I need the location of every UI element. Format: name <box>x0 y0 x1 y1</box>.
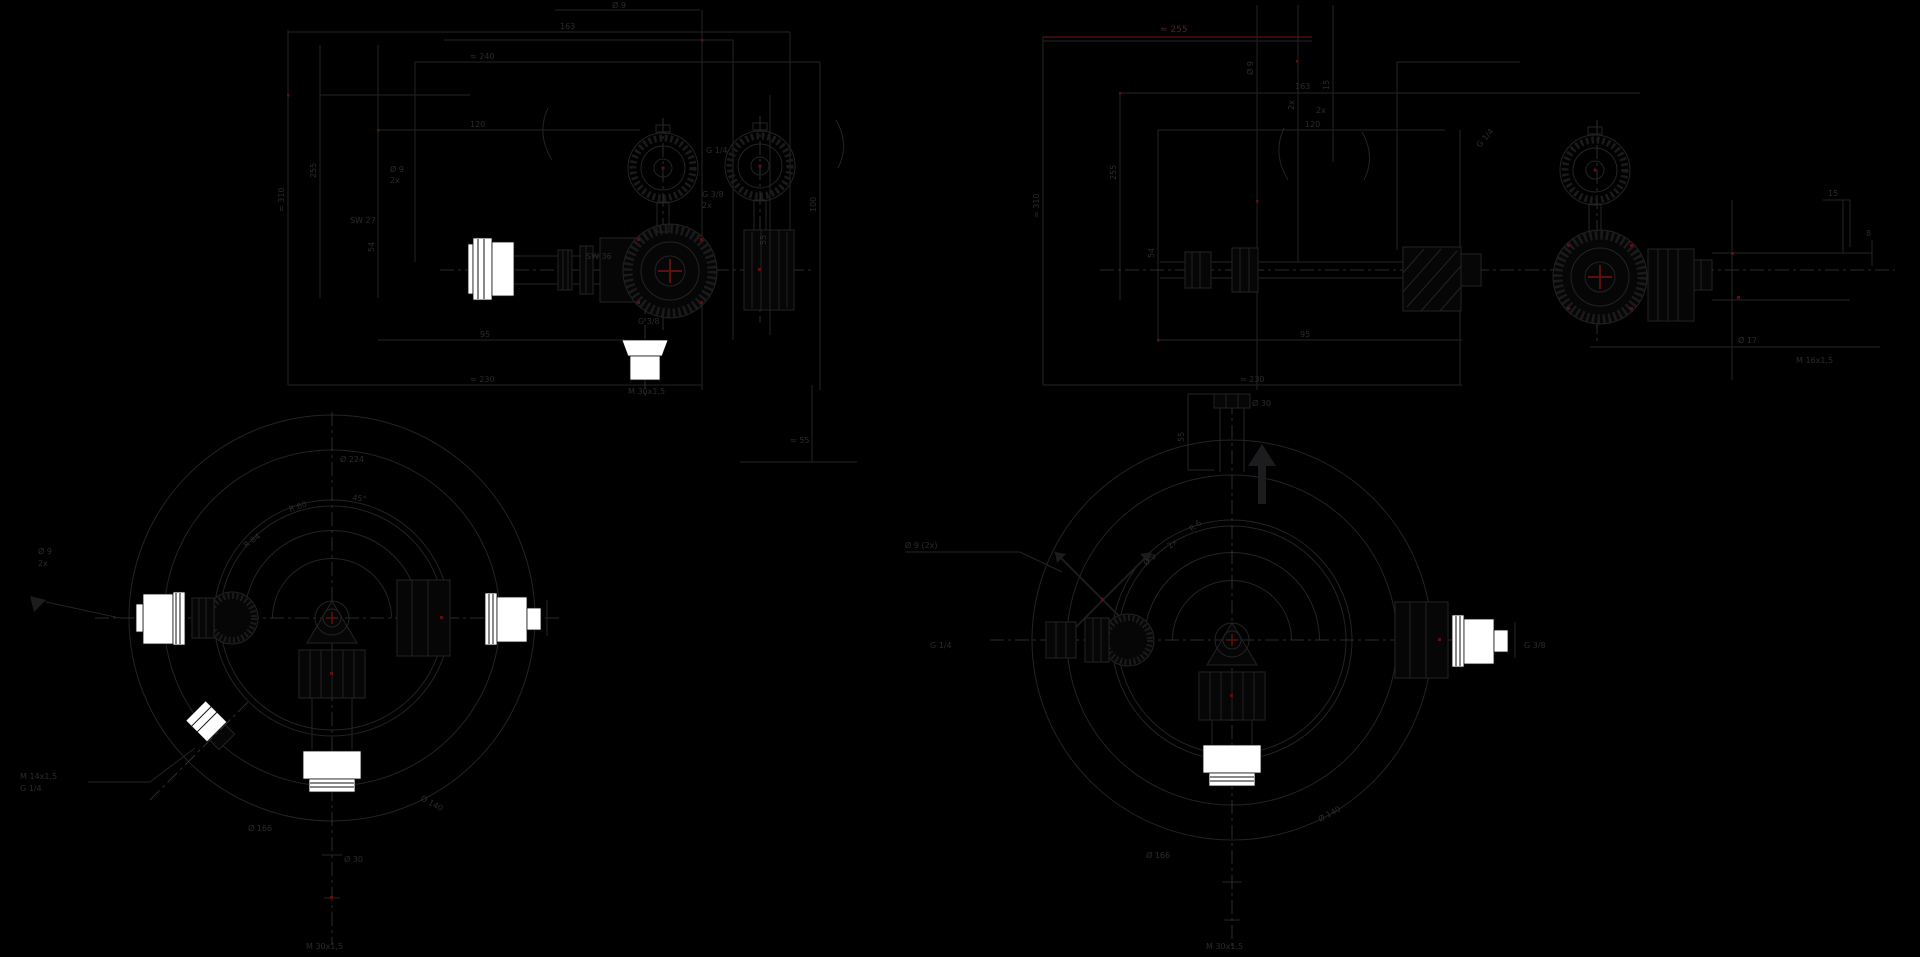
dim-label: 2x <box>1316 106 1326 115</box>
dim-label: G 1/4 <box>706 146 728 155</box>
side-handwheel <box>1553 230 1647 324</box>
dim-label-red: ≈ 255 <box>1160 25 1188 35</box>
dim-label: G 1/4 <box>20 784 42 793</box>
dim-label: ≈ 55 <box>790 436 809 445</box>
dim-label: SW 36 <box>586 252 612 261</box>
dim-label: 95 <box>1300 330 1310 339</box>
dim-label: G 3/8 <box>638 317 660 326</box>
dim-label: 163 <box>560 22 575 31</box>
dim-label: 255 <box>309 163 318 178</box>
dim-label: 2x <box>702 201 712 210</box>
dim-label: 120 <box>470 120 485 129</box>
dim-label: 120 <box>1305 120 1320 129</box>
dim-label: 8 <box>1866 229 1871 238</box>
adjusting-handwheel <box>623 224 717 318</box>
dim-label: Ø 17 <box>1738 335 1757 345</box>
hatched-body-block <box>1403 247 1461 311</box>
inlet-fitting-white <box>468 238 514 300</box>
dim-label: Ø 9 <box>38 546 52 556</box>
dim-label: M 16x1,5 <box>1796 356 1833 365</box>
dim-label: 15 <box>1828 189 1838 198</box>
dim-label: 54 <box>367 242 376 252</box>
dim-label: Ø 30 <box>1252 398 1271 408</box>
dim-label: G 1/4 <box>930 641 952 650</box>
dim-label: Ø 9 <box>612 0 626 10</box>
technical-drawing-canvas: Ø 9 163 ≈ 240 ≈ 310 255 54 120 95 ≈ 230 … <box>0 0 1920 957</box>
dim-label: Ø 166 <box>1146 850 1170 860</box>
dim-label: 55 <box>759 235 768 245</box>
dim-label: G 3/8 <box>1524 641 1546 650</box>
dim-label: 2x <box>1287 100 1296 110</box>
plan-right-left-port <box>1046 614 1154 666</box>
dim-label: Ø 30 <box>344 854 363 864</box>
dim-label: 2x <box>38 559 48 568</box>
dim-label: M 14x1,5 <box>20 772 57 781</box>
dim-label: ≈ 230 <box>1240 375 1265 384</box>
dim-label: 15 <box>1322 80 1331 90</box>
bottom-fitting-white-plan-right <box>1203 745 1261 786</box>
inlet-fitting-white-plan <box>136 592 185 645</box>
dim-label: 2x <box>390 176 400 185</box>
plan-left-inlet-port <box>136 592 258 645</box>
dim-label: M 30x1,5 <box>1206 942 1243 951</box>
dim-label: Ø 166 <box>248 823 272 833</box>
dim-label: 100 <box>809 197 818 212</box>
dim-label: M 30x1,5 <box>306 942 343 951</box>
dim-label: G 3/8 <box>702 190 724 199</box>
bottom-fitting-white-plan <box>303 751 361 792</box>
dim-label: ≈ 310 <box>1032 193 1041 218</box>
dim-label: ≈ 230 <box>470 375 495 384</box>
dim-label: ≈ 240 <box>470 52 495 61</box>
dim-label: Ø 9 <box>390 164 404 174</box>
dim-label: ≈ 310 <box>277 187 286 212</box>
dim-label: 95 <box>480 330 490 339</box>
outlet-valve <box>744 230 794 310</box>
dim-label: Ø 9 <box>1245 61 1255 75</box>
dim-label: 55 <box>1177 432 1186 442</box>
dim-label: M 30x1,5 <box>628 387 665 396</box>
dim-label: 255 <box>1109 165 1118 180</box>
dim-label: 54 <box>1147 248 1156 258</box>
dim-label: Ø 9 (2x) <box>905 540 938 550</box>
body-neck <box>1461 254 1481 286</box>
dim-label: Ø 224 <box>340 454 364 464</box>
dim-label: SW 27 <box>350 216 376 225</box>
dim-label: 163 <box>1295 82 1310 91</box>
